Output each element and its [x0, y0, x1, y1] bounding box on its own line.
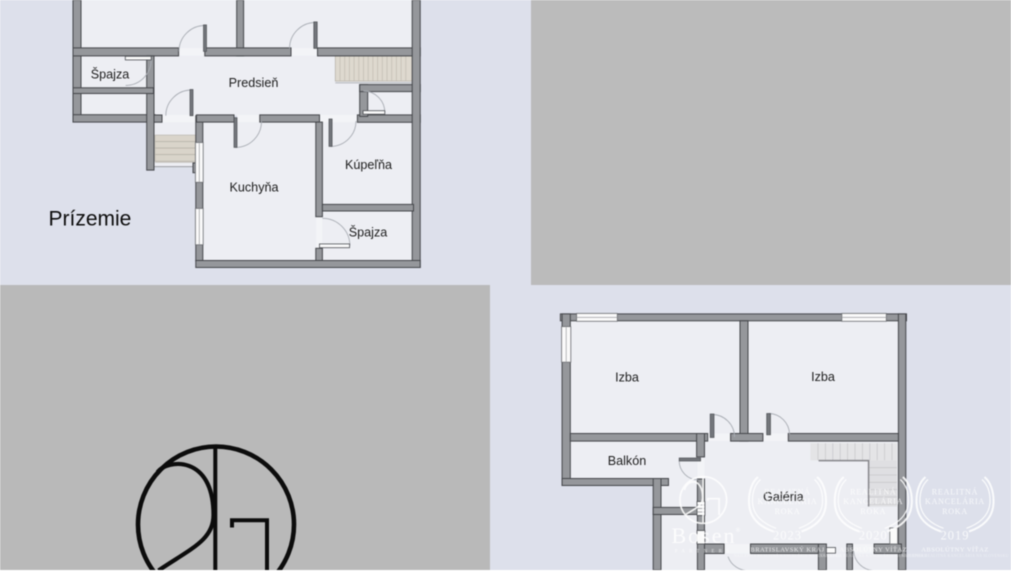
svg-text:REALITNÁ: REALITNÁ	[850, 487, 896, 497]
svg-text:2019: 2019	[941, 529, 970, 543]
svg-text:PARTNERS: PARTNERS	[675, 550, 733, 555]
svg-text:REALITNÁ: REALITNÁ	[932, 487, 978, 497]
svg-text:Kúpeľňa: Kúpeľňa	[345, 158, 392, 172]
svg-text:Balkón: Balkón	[608, 454, 647, 468]
svg-text:NAJLEPŠIA REALITNÁ KANCELÁRIA: NAJLEPŠIA REALITNÁ KANCELÁRIA NA SLOVENS…	[901, 553, 1008, 558]
svg-text:ABSOLÚTNY VÍŤAZ: ABSOLÚTNY VÍŤAZ	[921, 546, 989, 554]
svg-text:ROKA: ROKA	[775, 507, 801, 516]
svg-text:2023: 2023	[773, 529, 802, 543]
svg-text:ROKA: ROKA	[860, 507, 886, 516]
svg-text:Kuchyňa: Kuchyňa	[229, 181, 278, 195]
svg-text:Izba: Izba	[615, 371, 639, 385]
svg-text:Izba: Izba	[811, 370, 835, 384]
svg-text:Špajza: Špajza	[91, 67, 130, 82]
svg-text:ROKA: ROKA	[942, 507, 968, 516]
svg-text:KANCELÁRIA: KANCELÁRIA	[925, 496, 985, 506]
svg-text:KANCELÁRIA: KANCELÁRIA	[758, 496, 818, 506]
svg-text:REALITNÁ: REALITNÁ	[764, 487, 810, 497]
svg-text:®: ®	[736, 527, 741, 534]
svg-text:2020: 2020	[859, 529, 888, 543]
svg-text:Predsieň: Predsieň	[229, 76, 279, 90]
svg-text:KANCELÁRIA: KANCELÁRIA	[843, 496, 903, 506]
svg-text:ABSOLÚTNY VÍŤAZ: ABSOLÚTNY VÍŤAZ	[839, 546, 907, 554]
svg-text:Špajza: Špajza	[349, 225, 388, 240]
svg-text:Bosen: Bosen	[672, 523, 737, 548]
svg-text:Prízemie: Prízemie	[49, 208, 132, 231]
svg-text:BRATISLAVSKÝ KRAJ: BRATISLAVSKÝ KRAJ	[750, 546, 824, 554]
